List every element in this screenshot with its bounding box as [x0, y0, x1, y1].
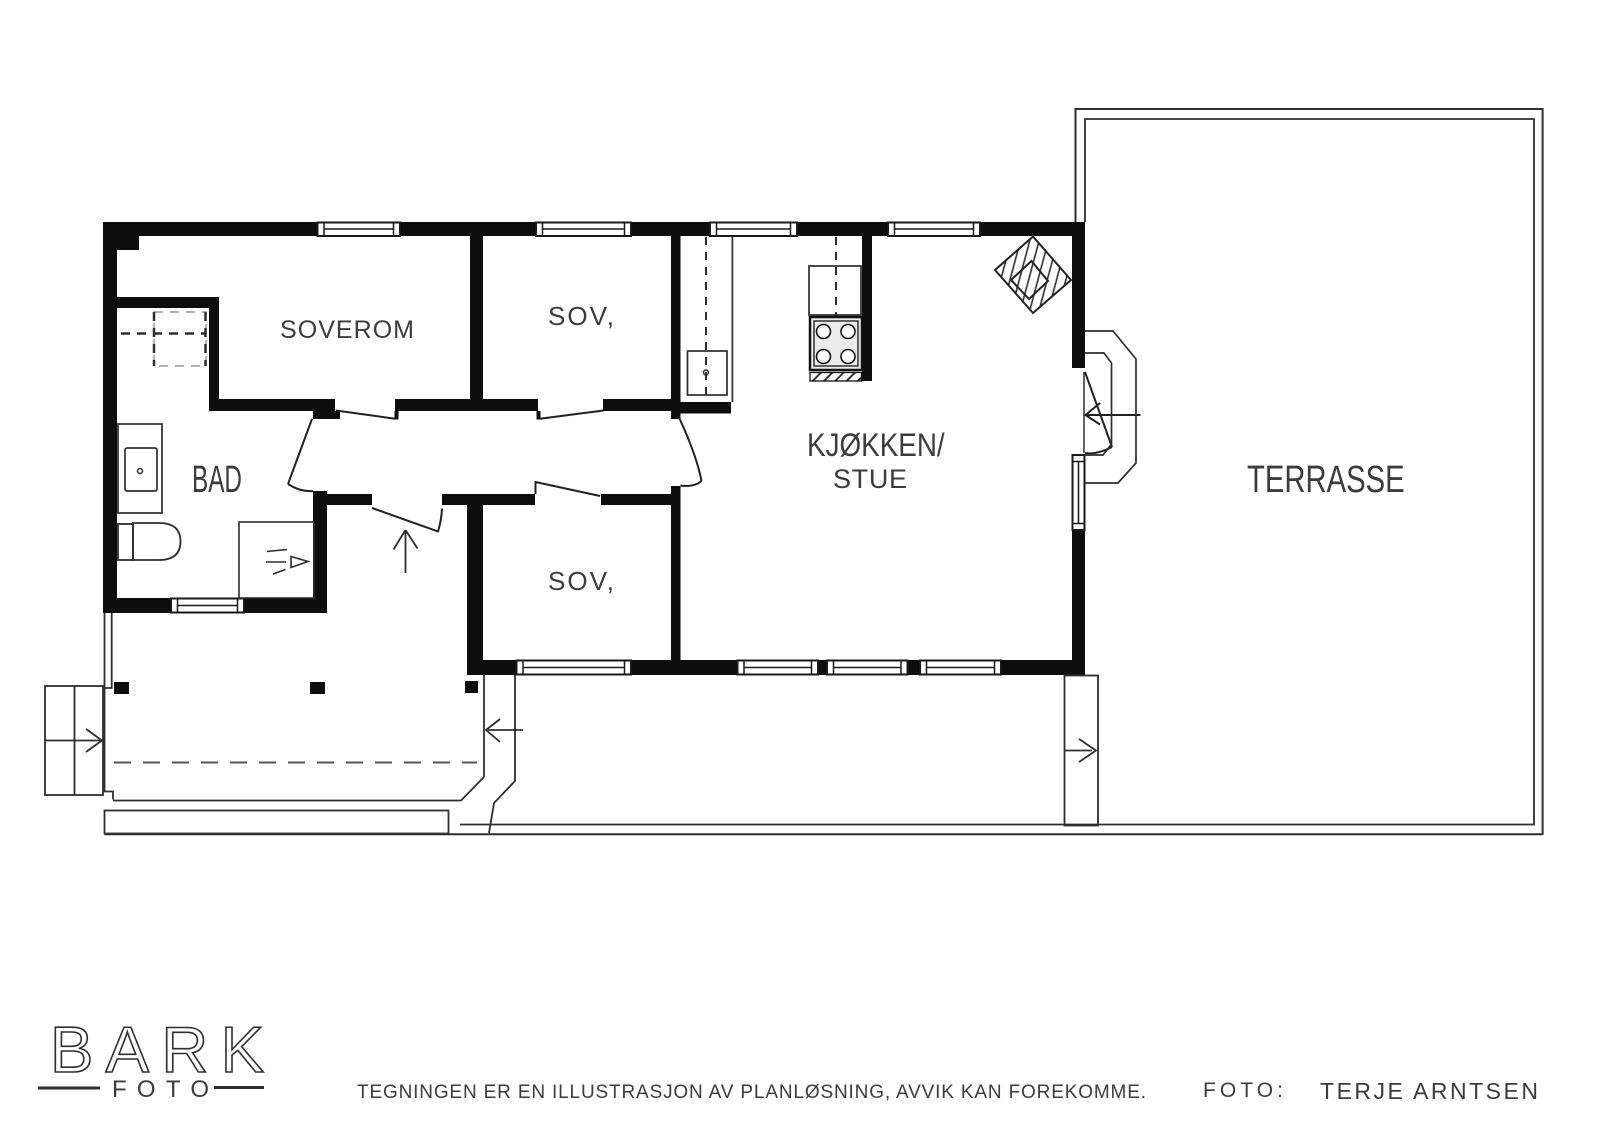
svg-text:FOTO:: FOTO: [1203, 1079, 1283, 1102]
svg-text:SOV,: SOV, [548, 566, 614, 596]
svg-text:TERRASSE: TERRASSE [1247, 458, 1405, 501]
svg-text:SOVEROM: SOVEROM [280, 316, 414, 344]
svg-text:BAD: BAD [192, 457, 242, 500]
svg-text:STUE: STUE [833, 464, 907, 494]
svg-text:SOV,: SOV, [548, 301, 614, 331]
svg-text:KJØKKEN/: KJØKKEN/ [807, 428, 945, 463]
svg-text:TEGNINGEN ER EN ILLUSTRASJON A: TEGNINGEN ER EN ILLUSTRASJON AV PLANLØSN… [357, 1082, 1146, 1103]
